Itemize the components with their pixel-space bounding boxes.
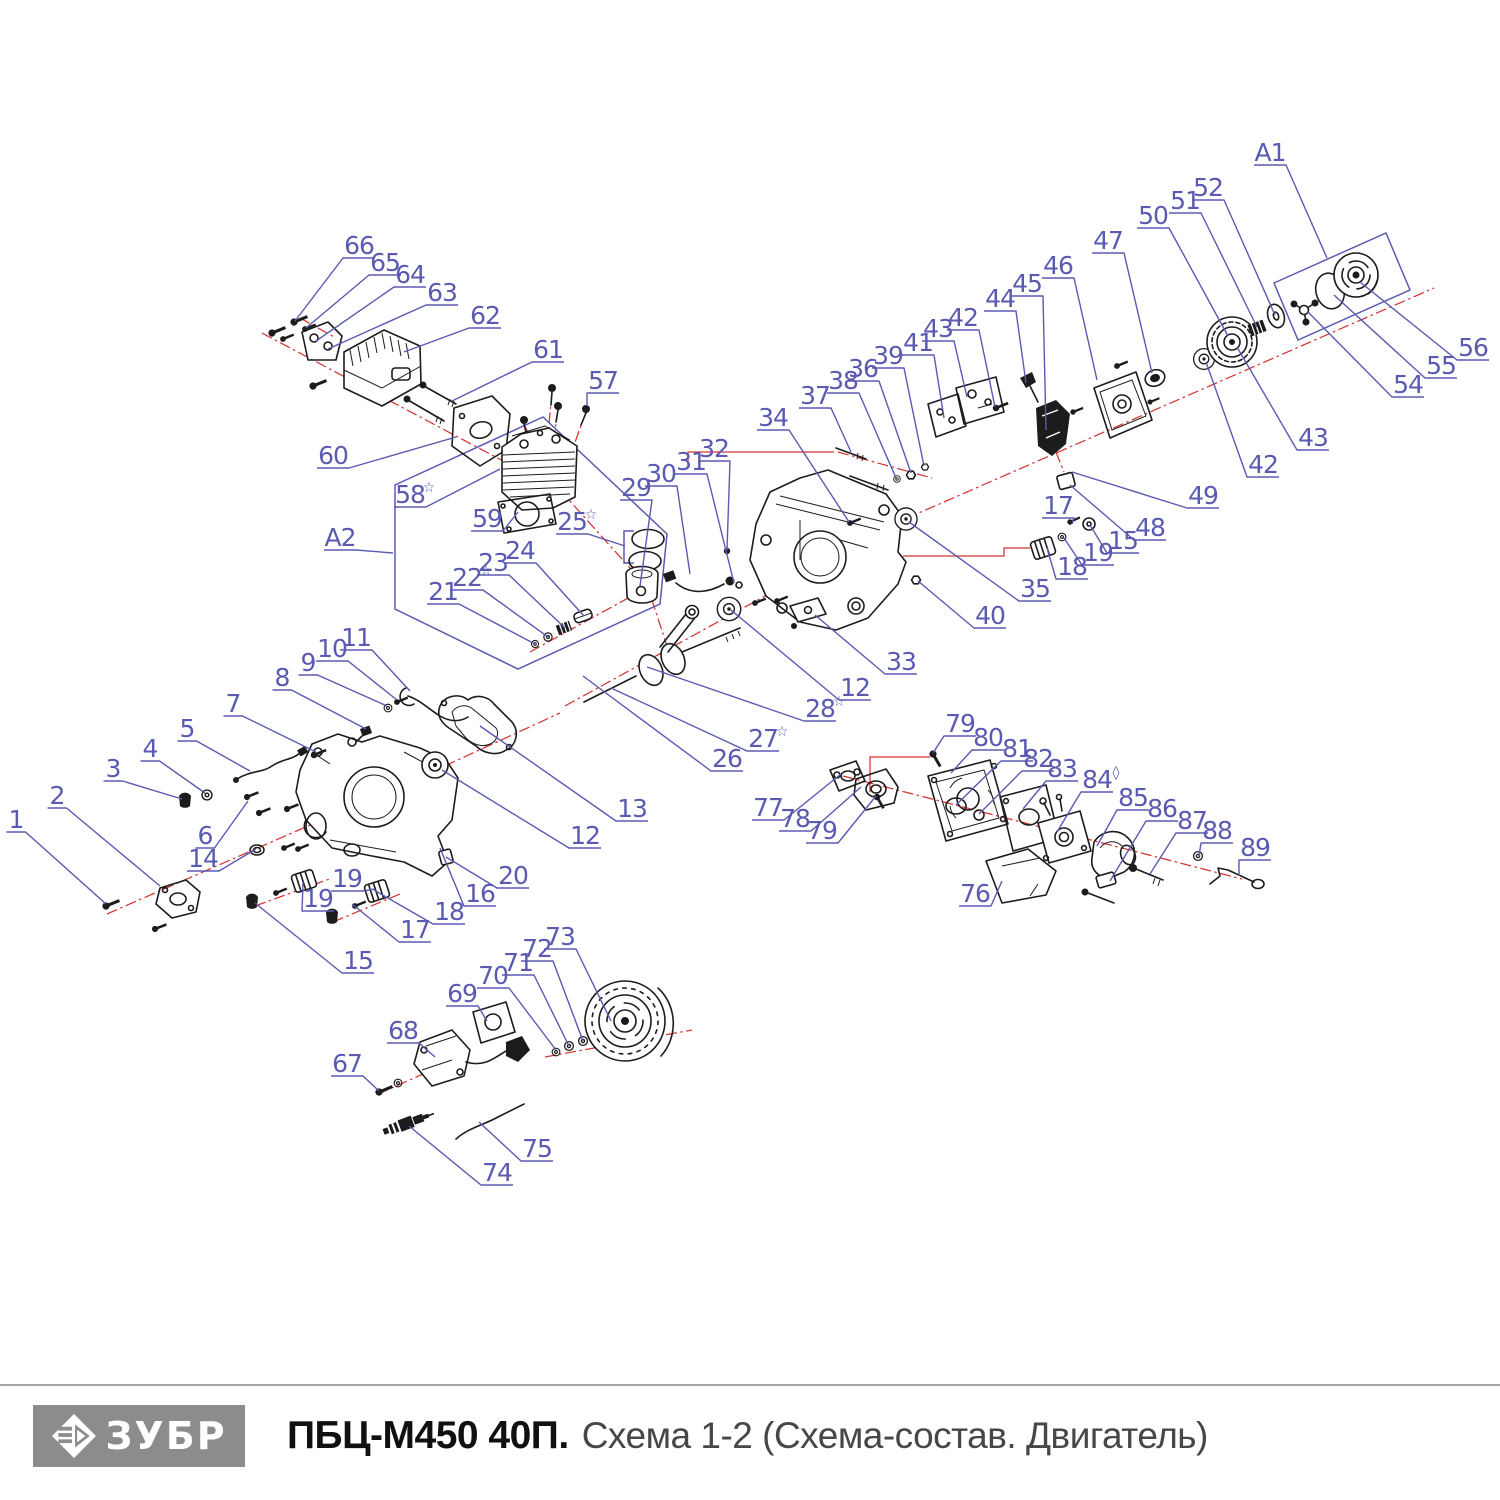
bearing-12	[717, 597, 740, 620]
svg-text:56: 56	[1458, 333, 1488, 362]
svg-text:40: 40	[975, 601, 1005, 630]
svg-text:☆: ☆	[585, 507, 598, 523]
svg-text:43: 43	[1298, 423, 1328, 452]
svg-text:78: 78	[780, 804, 810, 833]
callout-25: 25☆	[556, 507, 625, 546]
callout-42: 42	[1206, 362, 1279, 479]
callout-60: 60	[317, 437, 456, 470]
crankshaft	[584, 606, 740, 703]
airbox-base	[928, 760, 1008, 841]
callout-68: 68	[387, 1016, 435, 1057]
zubr-logo: ЗУБР	[33, 1405, 245, 1467]
intake-manifold	[854, 769, 898, 810]
callout-32: 32	[698, 434, 730, 550]
breather-tube	[408, 696, 468, 721]
callout-2: 2	[48, 781, 161, 886]
callout-24: 24	[504, 536, 584, 616]
svg-text:77: 77	[753, 793, 783, 822]
callout-49: 49	[1072, 472, 1219, 510]
muffler-assembly	[267, 313, 510, 466]
callout-11: 11	[340, 623, 410, 691]
crankcase-left	[296, 696, 516, 876]
callout-7: 7	[224, 689, 317, 752]
svg-text:4: 4	[143, 734, 158, 763]
callout-51: 51	[1169, 186, 1257, 327]
choke-rod	[1210, 868, 1254, 884]
svg-text:49: 49	[1188, 481, 1218, 510]
callout-45: 45	[1011, 269, 1046, 430]
svg-text:5: 5	[180, 714, 195, 743]
svg-text:67: 67	[332, 1049, 362, 1078]
spark-plug	[382, 1108, 436, 1137]
callout-27: 27☆	[611, 688, 788, 753]
doc-title-subtitle: Схема 1-2 (Схема-состав. Двигатель)	[582, 1415, 1208, 1457]
callout-89: 89	[1239, 833, 1271, 876]
svg-text:18: 18	[434, 897, 464, 926]
callout-56: 56	[1360, 282, 1489, 362]
callout-44: 44	[984, 284, 1026, 383]
callout-75: 75	[479, 1122, 553, 1163]
svg-text:☆: ☆	[833, 694, 846, 710]
wrist-pin	[573, 608, 593, 624]
svg-text:76: 76	[960, 879, 990, 908]
svg-text:37: 37	[800, 381, 830, 410]
svg-text:48: 48	[1135, 513, 1165, 542]
callout-47: 47	[1092, 226, 1152, 373]
brand-text: ЗУБР	[105, 1414, 226, 1458]
svg-text:33: 33	[886, 647, 916, 676]
plug-cap	[506, 1036, 530, 1062]
flywheel-group	[552, 981, 673, 1061]
bearing-12	[422, 752, 448, 778]
svg-text:12: 12	[570, 821, 600, 850]
svg-text:45: 45	[1012, 269, 1042, 298]
callout-12: 12	[442, 770, 601, 850]
doc-title: ПБЦ-М450 40П. Схема 1-2 (Схема-состав. Д…	[287, 1405, 1208, 1467]
callout-57: 57	[587, 366, 619, 406]
svg-text:42: 42	[1248, 450, 1278, 479]
callout-39: 39	[872, 341, 924, 466]
callout-61: 61	[452, 335, 564, 401]
svg-text:43: 43	[923, 314, 953, 343]
svg-text:69: 69	[447, 979, 477, 1008]
svg-text:28: 28	[805, 694, 835, 723]
svg-text:26: 26	[712, 744, 742, 773]
piston-assembly	[531, 530, 664, 648]
callout-88: 88	[1199, 816, 1233, 856]
callout-17: 17	[352, 904, 431, 944]
svg-text:39: 39	[873, 341, 903, 370]
clutch-spider	[1291, 300, 1319, 326]
svg-text:17: 17	[1043, 491, 1073, 520]
callout-6: 6	[196, 801, 249, 850]
callout-67: 67	[331, 1049, 379, 1091]
intake-ring	[946, 798, 966, 814]
svg-text:23: 23	[478, 548, 508, 577]
svg-text:85: 85	[1118, 783, 1148, 812]
callouts-layer: 1234567891011121213141515161717181819191…	[7, 138, 1490, 1187]
callout-40: 40	[918, 581, 1006, 630]
svg-text:86: 86	[1147, 794, 1177, 823]
svg-text:47: 47	[1093, 226, 1123, 255]
clutch-assembly	[1291, 253, 1379, 326]
svg-text:27: 27	[748, 724, 778, 753]
callout-5: 5	[178, 714, 251, 771]
svg-text:A2: A2	[324, 523, 355, 552]
svg-text:1: 1	[9, 805, 24, 834]
svg-text:3: 3	[106, 754, 121, 783]
svg-text:65: 65	[370, 248, 400, 277]
callout-31: 31	[675, 447, 734, 583]
callout-55: 55	[1334, 295, 1457, 380]
callout-8: 8	[273, 663, 367, 729]
svg-text:◊: ◊	[1113, 765, 1120, 781]
svg-text:2: 2	[50, 781, 65, 810]
footer-divider	[0, 1384, 1500, 1386]
svg-text:52: 52	[1193, 173, 1223, 202]
callout-30: 30	[645, 459, 690, 574]
svg-text:63: 63	[427, 278, 457, 307]
callout-79: 79	[933, 709, 976, 753]
callout-43: 43	[1237, 347, 1329, 452]
intake-gasket	[830, 761, 865, 791]
svg-text:32: 32	[699, 434, 729, 463]
exploded-diagram: 1234567891011121213141515161717181819191…	[0, 0, 1500, 1385]
callout-19: 19	[302, 882, 334, 913]
oil-hose	[237, 753, 300, 779]
zubr-logo-icon	[51, 1413, 97, 1459]
svg-text:30: 30	[646, 459, 676, 488]
oil-pump-right	[1020, 372, 1076, 490]
svg-text:24: 24	[505, 536, 535, 565]
ignition-coil	[414, 1030, 470, 1086]
svg-text:20: 20	[498, 861, 528, 890]
intake-boot	[1092, 832, 1135, 878]
svg-text:34: 34	[758, 403, 788, 432]
svg-text:9: 9	[301, 648, 316, 677]
svg-text:68: 68	[388, 1016, 418, 1045]
svg-text:79: 79	[945, 709, 975, 738]
callout-1: 1	[7, 805, 107, 904]
callout-14: 14	[187, 844, 256, 873]
svg-text:☆: ☆	[776, 724, 789, 740]
svg-text:75: 75	[522, 1134, 552, 1163]
svg-text:57: 57	[588, 366, 618, 395]
callout-4: 4	[141, 734, 206, 793]
svg-text:50: 50	[1138, 201, 1168, 230]
callout-46: 46	[1042, 251, 1097, 380]
svg-text:11: 11	[341, 623, 371, 652]
svg-text:83: 83	[1047, 754, 1077, 783]
callout-42: 42	[947, 303, 995, 407]
svg-text:66: 66	[344, 231, 374, 260]
svg-text:14: 14	[188, 844, 218, 873]
svg-text:60: 60	[318, 441, 348, 470]
svg-text:58: 58	[395, 480, 425, 509]
svg-text:☆: ☆	[423, 480, 436, 496]
screw-87	[1136, 869, 1163, 880]
pump-plate	[156, 880, 200, 918]
svg-text:88: 88	[1202, 816, 1232, 845]
svg-text:8: 8	[275, 663, 290, 692]
callout-17: 17	[1042, 491, 1074, 524]
svg-text:13: 13	[617, 794, 647, 823]
parts-linework	[101, 253, 1378, 1139]
callout-15: 15	[255, 903, 374, 975]
callout-79: 79	[806, 796, 876, 845]
svg-text:7: 7	[226, 689, 241, 718]
callout-28: 28☆	[647, 667, 845, 723]
callout-58: 58☆	[394, 469, 500, 509]
svg-text:73: 73	[545, 922, 575, 951]
chain-catcher	[928, 377, 1009, 437]
ht-wire	[466, 1050, 508, 1064]
svg-text:A1: A1	[1254, 138, 1285, 167]
svg-text:54: 54	[1393, 370, 1423, 399]
svg-text:59: 59	[472, 504, 502, 533]
svg-text:80: 80	[973, 723, 1003, 752]
svg-text:19: 19	[332, 864, 362, 893]
callout-76: 76	[959, 879, 1002, 908]
callout-50: 50	[1137, 201, 1228, 336]
svg-text:74: 74	[482, 1158, 512, 1187]
svg-text:19: 19	[303, 884, 333, 913]
svg-text:46: 46	[1043, 251, 1073, 280]
svg-text:61: 61	[533, 335, 563, 364]
doc-title-model: ПБЦ-М450 40П.	[287, 1414, 569, 1458]
svg-text:79: 79	[807, 816, 837, 845]
svg-text:38: 38	[828, 366, 858, 395]
bearing-35	[895, 508, 917, 530]
svg-text:35: 35	[1020, 574, 1050, 603]
svg-text:62: 62	[470, 301, 500, 330]
svg-text:19: 19	[1083, 538, 1113, 567]
callout-66: 66	[295, 231, 375, 321]
svg-text:25: 25	[557, 507, 587, 536]
schematic-page: 1234567891011121213141515161717181819191…	[0, 0, 1500, 1500]
callout-A1: A1	[1254, 138, 1327, 258]
callout-A2: A2	[324, 523, 393, 553]
svg-text:89: 89	[1240, 833, 1270, 862]
starter-wire	[456, 1104, 524, 1139]
seal-ring	[974, 810, 984, 820]
svg-text:44: 44	[985, 284, 1015, 313]
washer-88	[1194, 852, 1203, 861]
svg-text:84: 84	[1082, 765, 1112, 794]
svg-text:15: 15	[343, 946, 373, 975]
